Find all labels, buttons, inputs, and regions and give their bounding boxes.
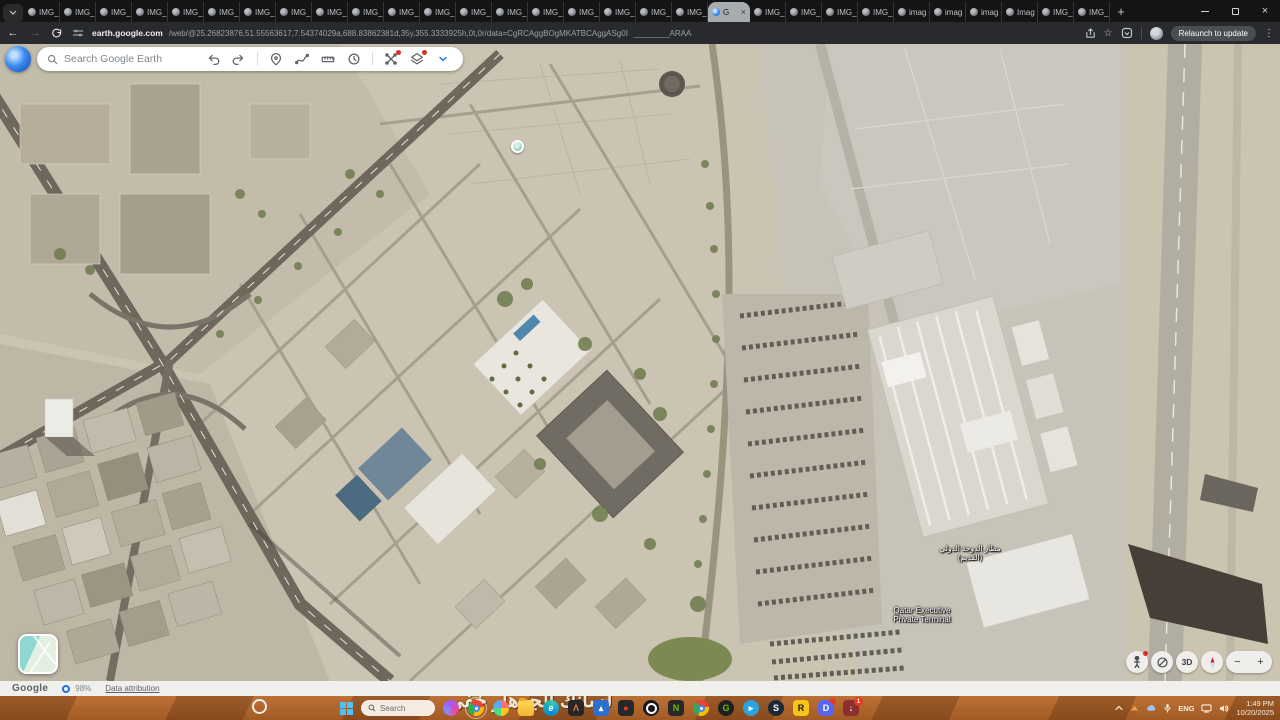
app-obs[interactable] [643,700,659,716]
tab[interactable]: IMG_ [60,2,96,22]
tab-favicon [568,8,576,16]
close-icon: × [1262,6,1268,17]
placemark-button[interactable] [264,48,288,70]
tab-label: IMG_ [765,8,785,17]
notification-dot [422,50,427,55]
slashed-circle-icon [1156,656,1169,669]
app-gallery[interactable]: ▴ [593,700,609,716]
notification-dot [1143,651,1148,656]
tab-favicon [1078,8,1086,16]
tray-expand-icon[interactable] [1115,705,1123,711]
tab-label: IMG_ [687,8,707,17]
tab-favicon [712,8,720,16]
imagery-loading-ring [62,685,70,693]
wallpaper-decoration [252,699,267,714]
tools-button[interactable] [379,48,403,70]
tab-label: IMG_ [399,8,419,17]
tab[interactable]: IMG_ [1038,2,1074,22]
tab-label: IMG_ [873,8,893,17]
google-logo: Google [12,683,48,694]
tab-favicon [424,8,432,16]
tab-favicon [316,8,324,16]
language-indicator[interactable]: ENG [1178,704,1194,713]
compass[interactable] [1201,651,1223,673]
tab-active[interactable]: G× [708,2,750,22]
collapse-toolbar-button[interactable] [431,48,455,70]
browser-menu-icon[interactable]: ⋮ [1264,28,1274,39]
layers-button[interactable] [405,48,429,70]
tab-favicon [862,8,870,16]
tab[interactable]: IMG_ [456,2,492,22]
tab-label: IMG_ [579,8,599,17]
app-downloads[interactable]: ↓1 [843,700,859,716]
tab-label: IMG_ [543,8,563,17]
tab-label: IMG_ [255,8,275,17]
taskbar-clock[interactable]: 1:49 PM 10/20/2025 [1236,699,1274,717]
tab-label: IMG_ [111,8,131,17]
tab-strip-tabs: IMG_IMG_IMG_IMG_IMG_IMG_IMG_IMG_IMG_IMG_… [24,2,1110,22]
tab[interactable]: IMG_ [420,2,456,22]
compass-needle-icon [1206,656,1219,669]
tab-favicon [676,8,684,16]
tab[interactable]: IMG_ [672,2,708,22]
tab-favicon [64,8,72,16]
tab-favicon [790,8,798,16]
app-file-explorer[interactable] [518,700,534,716]
tab[interactable]: IMG_ [384,2,420,22]
tab-strip: IMG_IMG_IMG_IMG_IMG_IMG_IMG_IMG_IMG_IMG_… [0,0,1280,22]
search-icon [47,54,58,65]
status-bar: Google 98% Data attribution [0,681,1280,696]
tab-favicon [898,8,906,16]
tab-label: IMG_ [291,8,311,17]
undo-icon [205,51,221,67]
tab-label: Imag [1017,8,1035,17]
url-host: earth.google.com [92,28,163,38]
3d-label: 3D [1182,657,1193,667]
app-rockstar[interactable]: R [793,700,809,716]
google-earth-logo[interactable] [5,46,31,72]
minimize-icon [1201,11,1209,12]
tab-label: IMG_ [1053,8,1073,17]
satellite-imagery [0,44,1280,681]
reload-button[interactable] [50,28,64,39]
tab[interactable]: IMG_ [168,2,204,22]
tab-favicon [604,8,612,16]
ruler-icon [320,51,336,67]
update-arrow-icon[interactable] [1130,704,1139,713]
app-geforce[interactable]: G [718,700,734,716]
tab[interactable]: IMG_ [600,2,636,22]
app-nvidia[interactable]: N [668,700,684,716]
notification-dot [830,698,836,704]
tab-close-icon[interactable]: × [741,8,746,17]
tab-favicon [1042,8,1050,16]
data-attribution-link[interactable]: Data attribution [105,684,159,693]
search-icon [368,704,376,712]
tab[interactable]: IMG_ [204,2,240,22]
tab-label: IMG_ [327,8,347,17]
divider [372,52,373,66]
tab-favicon [136,8,144,16]
chevron-down-icon [9,10,17,16]
tab-favicon [244,8,252,16]
app-chrome-2[interactable] [693,700,709,716]
tab[interactable]: IMG_ [312,2,348,22]
tab-favicon [496,8,504,16]
app-discord[interactable]: D [818,700,834,716]
maximize-button[interactable] [1220,0,1250,22]
tab-favicon [172,8,180,16]
tab[interactable]: IMG_ [858,2,894,22]
divider [1141,27,1142,39]
redo-button[interactable] [227,48,251,70]
taskbar-search[interactable]: Search [361,700,435,716]
taskbar-search-placeholder: Search [380,704,405,713]
tab[interactable]: IMG_ [750,2,786,22]
toolbar-pill: Search Google Earth [37,47,463,71]
taskbar: لسانك الجرهار خفي Search eΛ▴●NG▸SRD↓1 EN… [0,696,1280,720]
tab-favicon [1006,8,1014,16]
taskbar-apps: Search eΛ▴●NG▸SRD↓1 [340,696,859,720]
tab[interactable]: imag [930,2,966,22]
app-autodesk[interactable]: Λ [568,700,584,716]
tab[interactable]: IMG_ [492,2,528,22]
start-button[interactable] [340,702,353,715]
tab[interactable]: IMG_ [786,2,822,22]
measure-button[interactable] [316,48,340,70]
tab-favicon [352,8,360,16]
tab[interactable]: imag [966,2,1002,22]
draw-path-button[interactable] [290,48,314,70]
pegman-button[interactable] [1126,651,1148,673]
tab-label: IMG_ [435,8,455,17]
tab-label: IMG_ [75,8,95,17]
app-chrome[interactable] [468,700,484,716]
tab-favicon [640,8,648,16]
minimize-button[interactable] [1190,0,1220,22]
search-input[interactable]: Search Google Earth [47,53,199,65]
app-edge[interactable]: e [543,700,559,716]
tab-label: imag [909,8,926,17]
url-path: /web/@25.26823876,51.55563617,7.54374029… [169,29,628,38]
url-field[interactable]: earth.google.com /web/@25.26823876,51.55… [92,25,1077,41]
display-icon[interactable] [1201,704,1212,713]
notification-dot [396,50,401,55]
3d-toggle-button[interactable]: 3D [1176,651,1198,673]
profile-avatar[interactable] [1150,27,1163,40]
tab-favicon [100,8,108,16]
path-icon [294,51,310,67]
tab[interactable]: IMG_ [240,2,276,22]
tab-label: IMG_ [651,8,671,17]
tab[interactable]: imag [894,2,930,22]
volume-icon[interactable] [1219,704,1229,713]
app-recorder[interactable]: ● [618,700,634,716]
tab-label: IMG_ [363,8,383,17]
tab-label: IMG_ [219,8,239,17]
tab-label: IMG_ [183,8,203,17]
tab[interactable]: IMG_ [528,2,564,22]
tab[interactable]: IMG_ [24,2,60,22]
window-controls: × [1190,0,1280,22]
tab-favicon [934,8,942,16]
clock-date: 10/20/2025 [1236,708,1274,717]
tab[interactable]: IMG_ [276,2,312,22]
map-canvas[interactable] [0,44,1280,681]
clock-history-icon [346,51,362,67]
tab-label: imag [945,8,962,17]
tab[interactable]: IMG_ [348,2,384,22]
maximize-icon [1232,8,1239,15]
microphone-icon[interactable] [1164,703,1171,713]
onedrive-cloud-icon[interactable] [1146,704,1157,712]
clock-time: 1:49 PM [1236,699,1274,708]
tab-label: G [723,8,729,17]
map-controls: 3D − + [1126,651,1272,673]
earth-toolbar: Search Google Earth [5,46,463,72]
hide-overlays-button[interactable] [1151,651,1173,673]
notification-badge: 1 [854,697,863,706]
tab-label: IMG_ [39,8,59,17]
address-bar: ← → earth.google.com /web/@25.26823876,5… [0,22,1280,44]
tab-label: IMG_ [615,8,635,17]
tab-label: IMG_ [471,8,491,17]
tab-favicon [388,8,396,16]
undo-button[interactable] [201,48,225,70]
tab-favicon [280,8,288,16]
close-button[interactable]: × [1250,0,1280,22]
placemark-pin-icon [268,51,284,67]
tab[interactable]: IMG_ [132,2,168,22]
tab-label: IMG_ [1089,8,1109,17]
app-photos[interactable] [493,700,509,716]
app-clipchamp[interactable] [443,700,459,716]
address-bar-actions: ☆ Relaunch to update ⋮ [1085,26,1274,41]
zoom-out-button[interactable]: − [1234,656,1240,668]
screen: IMG_IMG_IMG_IMG_IMG_IMG_IMG_IMG_IMG_IMG_… [0,0,1280,720]
tab[interactable]: IMG_ [1074,2,1110,22]
share-icon[interactable] [1085,28,1096,39]
app-telegram[interactable]: ▸ [743,700,759,716]
forward-button[interactable]: → [28,27,42,39]
historical-imagery-button[interactable] [342,48,366,70]
tab-search-icon[interactable] [1121,27,1133,39]
taskbar-icon-row: eΛ▴●NG▸SRD↓1 [443,700,859,716]
relaunch-button[interactable]: Relaunch to update [1171,26,1256,41]
tab-overflow-button[interactable] [3,4,23,22]
tab-label: IMG_ [837,8,857,17]
pegman-icon [1132,656,1142,668]
divider [257,52,258,66]
tab-favicon [460,8,468,16]
search-placeholder: Search Google Earth [64,53,162,65]
new-tab-button[interactable]: + [1110,1,1132,21]
tab-favicon [208,8,216,16]
tab-favicon [826,8,834,16]
imagery-load-percent: 98% [75,684,91,693]
tab[interactable]: Imag [1002,2,1038,22]
tab-label: imag [981,8,998,17]
url-suffix: ________ARAA [634,29,691,38]
tab[interactable]: IMG_ [564,2,600,22]
minimap-preview [20,636,58,674]
site-settings-icon[interactable] [72,28,84,38]
tab[interactable]: IMG_ [636,2,672,22]
tab-label: IMG_ [507,8,527,17]
tab[interactable]: IMG_ [96,2,132,22]
chevron-down-icon [436,52,450,66]
tab-favicon [754,8,762,16]
redo-icon [231,51,247,67]
tab[interactable]: IMG_ [822,2,858,22]
tab-label: IMG_ [147,8,167,17]
tab-favicon [532,8,540,16]
back-button[interactable]: ← [6,27,20,39]
app-steam[interactable]: S [768,700,784,716]
zoom-control: − + [1226,651,1272,673]
tab-favicon [28,8,36,16]
tab-favicon [970,8,978,16]
system-tray: ENG 1:49 PM 10/20/2025 [1115,696,1274,720]
photosphere-marker[interactable] [511,140,524,153]
bookmark-star-icon[interactable]: ☆ [1104,28,1113,39]
minimap-toggle[interactable] [18,634,58,674]
zoom-in-button[interactable]: + [1257,656,1263,668]
tab-label: IMG_ [801,8,821,17]
